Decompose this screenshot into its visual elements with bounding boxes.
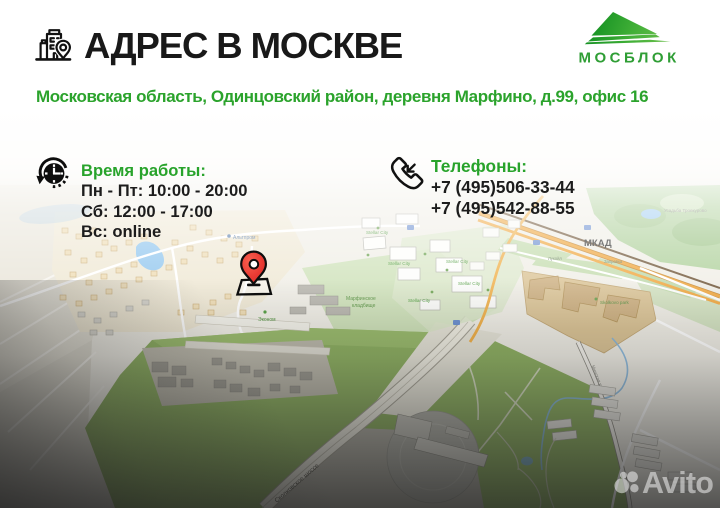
svg-text:Avito: Avito [642, 466, 713, 500]
svg-text:МОСБЛОК: МОСБЛОК [579, 50, 680, 67]
